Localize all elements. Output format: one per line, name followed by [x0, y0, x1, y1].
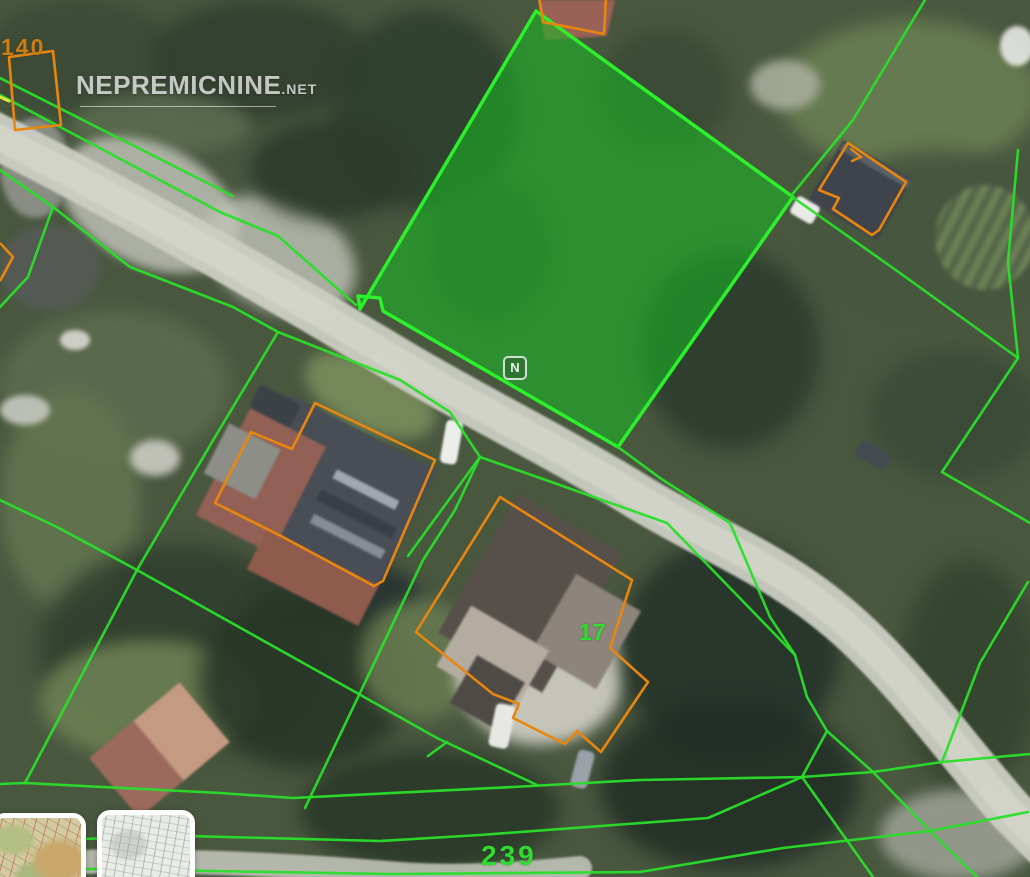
layer-thumbnail-roadmap[interactable] [97, 810, 195, 877]
watermark-tld: .net [281, 81, 317, 97]
parcel-boundary-line [1008, 150, 1018, 358]
roof-house-bottom-left [89, 682, 230, 818]
roof-house-2 [411, 494, 661, 763]
road-map-preview [102, 815, 190, 877]
parcel-boundary-line [428, 742, 447, 756]
building-outline[interactable] [0, 243, 13, 281]
watermark-underline [80, 106, 276, 107]
center-logo-badge: N [503, 356, 527, 380]
site-watermark: NEPREMICNINE.net [76, 72, 317, 98]
roof-house-1 [174, 376, 438, 626]
parcel-label-17: 17 [579, 619, 607, 646]
watermark-brand: NEPREMICNINE [76, 70, 281, 100]
dark-car-2 [854, 439, 892, 472]
parcel-boundary-line [791, 196, 1030, 523]
terrain-map-preview [0, 818, 81, 877]
parcel-boundary-line [0, 207, 53, 307]
layer-thumbnail-terrain[interactable] [0, 813, 86, 877]
parcel-label-140: 140 [1, 34, 45, 61]
parcel-boundary-line [802, 777, 873, 877]
map-viewport[interactable]: NEPREMICNINE.net N 140 239 17 [0, 0, 1030, 877]
parcel-label-239: 239 [481, 840, 537, 872]
building-outline[interactable] [9, 51, 61, 130]
